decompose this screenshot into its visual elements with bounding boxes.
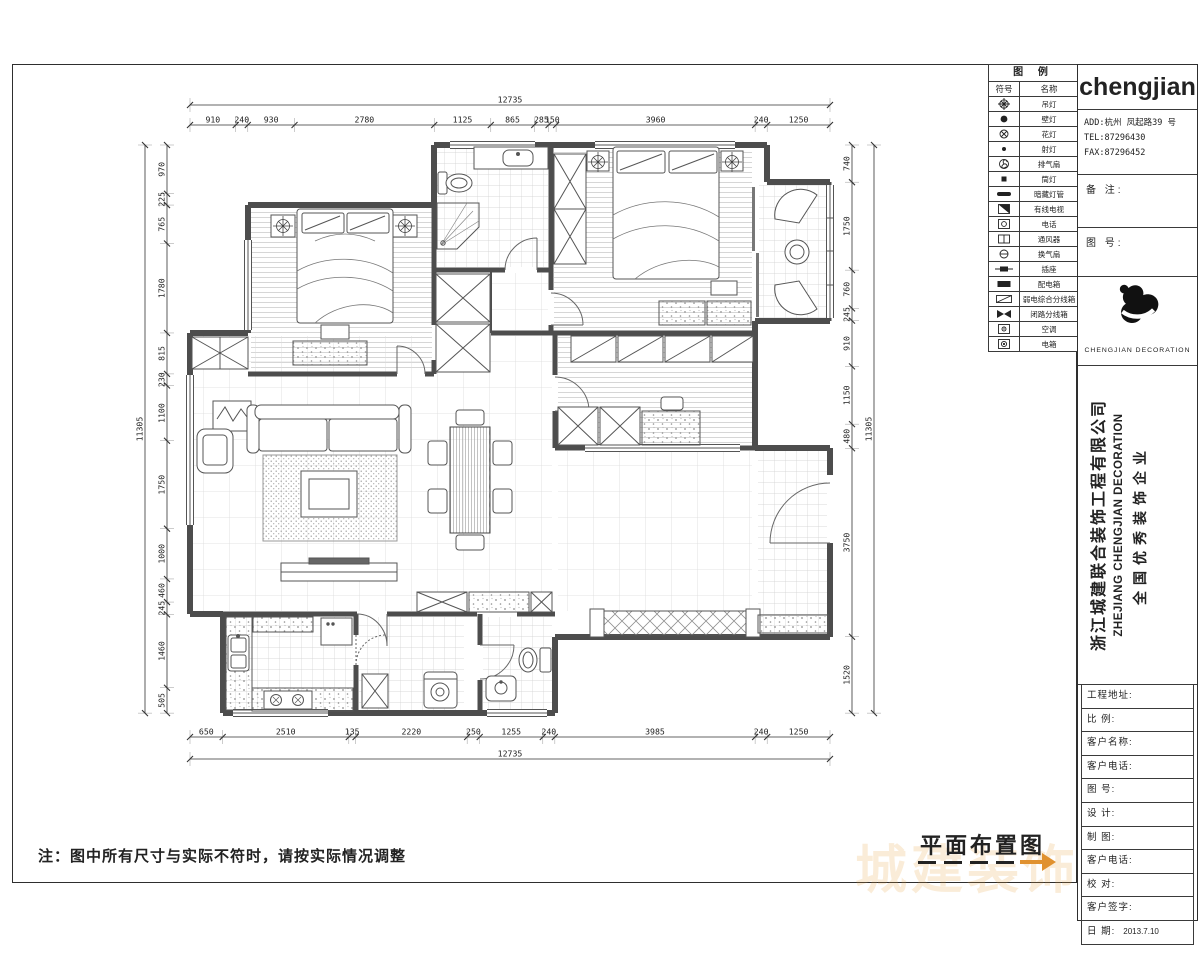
down-lamp-icon (994, 173, 1014, 185)
legend-item-name: 弱电综合分线箱 (1020, 294, 1078, 305)
dimension-value: 3960 (646, 115, 666, 125)
dimension-value: 480 (842, 429, 852, 444)
legend-row: 空调 (989, 322, 1078, 337)
legend-item-name: 射灯 (1020, 144, 1078, 155)
title-field-row: 校 对: (1081, 873, 1194, 898)
legend-symbol (989, 172, 1020, 186)
legend-row: 插座 (989, 262, 1078, 277)
ceiling-lamp-icon (994, 98, 1014, 110)
legend-table: 图 例 符号 名称 吊灯 壁灯 花灯 射灯 排气扇 筒灯 暗藏灯管 有线电视 电… (988, 64, 1079, 352)
company-logo-text: chengjian (1078, 65, 1197, 110)
legend-item-name: 花灯 (1020, 129, 1078, 140)
title-field-row: 客户签字: (1081, 896, 1194, 921)
heater-icon (994, 248, 1014, 260)
legend-body: 吊灯 壁灯 花灯 射灯 排气扇 筒灯 暗藏灯管 有线电视 电话 通风器 换气扇 (989, 97, 1078, 351)
dimension-value: 460 (157, 583, 167, 598)
title-block-fields: 工程地址:比 例:客户名称:客户电话:图 号:设 计:制 图:客户电话:校 对:… (1078, 684, 1197, 945)
dimension-value: 2220 (402, 727, 422, 737)
legend-row: 暗藏灯管 (989, 187, 1078, 202)
logo-caption: CHENGJIAN DECORATION (1078, 347, 1197, 354)
legend-col-symbol: 符号 (989, 82, 1020, 96)
legend-item-name: 闭路分线箱 (1020, 309, 1078, 320)
dimension-value: 240 (541, 727, 556, 737)
dimension-value: 650 (199, 727, 214, 737)
company-contact: ADD:杭州 凤起路39 号 TEL:87296430 FAX:87296452 (1078, 110, 1197, 175)
legend-symbol (989, 277, 1020, 291)
legend-row: 吊灯 (989, 97, 1078, 112)
legend-row: 闭路分线箱 (989, 307, 1078, 322)
company-name-en: ZHEJIANG CHENGJIAN DECORATION (1113, 370, 1125, 680)
floorplan-svg: 9102409302780112586528515039602401250127… (125, 75, 895, 795)
company-fax: FAX:87296452 (1084, 146, 1193, 161)
dimension-value: 865 (505, 115, 520, 125)
cove-light-icon (994, 188, 1014, 200)
dimension-value: 135 (345, 727, 360, 737)
title-field-row: 比 例: (1081, 708, 1194, 733)
title-field-row: 图 号: (1081, 778, 1194, 803)
logo-bird-icon (1103, 277, 1173, 341)
cctv-box-icon (994, 308, 1014, 320)
dimension-value: 240 (754, 115, 769, 125)
dimension-value: 1100 (157, 403, 167, 423)
sheet-note: 注：图中所有尺寸与实际不符时，请按实际情况调整 (38, 845, 406, 866)
title-field-row: 制 图: (1081, 826, 1194, 851)
dimension-value: 250 (466, 727, 481, 737)
dimension-value: 970 (157, 162, 167, 177)
dimension-value: 1000 (157, 544, 167, 564)
legend-row: 弱电综合分线箱 (989, 292, 1078, 307)
spot-lamp-icon (994, 143, 1014, 155)
dimension-value: 240 (754, 727, 769, 737)
legend-symbol (989, 202, 1020, 216)
dimension-value: 3985 (645, 727, 665, 737)
dimension-value: 3750 (842, 533, 852, 553)
legend-symbol (989, 262, 1020, 276)
legend-row: 射灯 (989, 142, 1078, 157)
socket-icon (994, 263, 1014, 275)
dimension-value: 815 (157, 346, 167, 361)
legend-row: 电箱 (989, 337, 1078, 351)
dimension-value: 760 (842, 282, 852, 297)
legend-symbol (989, 142, 1020, 156)
legend-item-name: 插座 (1020, 264, 1078, 275)
company-logo-mark: CHENGJIAN DECORATION (1078, 277, 1197, 366)
legend-symbol (989, 97, 1020, 111)
dimension-value: 245 (157, 601, 167, 616)
legend-row: 电话 (989, 217, 1078, 232)
cable-tv-icon (994, 203, 1014, 215)
legend-item-name: 吊灯 (1020, 99, 1078, 110)
company-name-cn: 浙江城建联合装饰工程有限公司 (1085, 370, 1109, 680)
date-value: 2013.7.10 (1123, 927, 1159, 936)
legend-symbol (989, 217, 1020, 231)
legend-item-name: 空调 (1020, 324, 1078, 335)
dimension-value: 1125 (453, 115, 473, 125)
dimension-value: 740 (842, 156, 852, 171)
dimension-value: 2510 (276, 727, 296, 737)
legend-item-name: 电话 (1020, 219, 1078, 230)
title-block: chengjian ADD:杭州 凤起路39 号 TEL:87296430 FA… (1077, 64, 1198, 921)
remark-label: 备 注: (1078, 175, 1197, 228)
legend-item-name: 筒灯 (1020, 174, 1078, 185)
legend-symbol (989, 307, 1020, 321)
phone-icon (994, 218, 1014, 230)
title-field-row: 客户名称: (1081, 731, 1194, 756)
legend-row: 筒灯 (989, 172, 1078, 187)
legend-row: 配电箱 (989, 277, 1078, 292)
title-field-row: 客户电话: (1081, 849, 1194, 874)
legend-item-name: 电箱 (1020, 339, 1078, 350)
legend-item-name: 换气扇 (1020, 249, 1078, 260)
legend-item-name: 配电箱 (1020, 279, 1078, 290)
balcony-slider (752, 187, 759, 317)
exhaust-fan-icon (994, 158, 1014, 170)
dimension-value: 240 (234, 115, 249, 125)
legend-symbol (989, 187, 1020, 201)
dimension-value: 11305 (135, 417, 145, 442)
company-names: 浙江城建联合装饰工程有限公司 ZHEJIANG CHENGJIAN DECORA… (1078, 366, 1197, 685)
dimension-value: 1255 (501, 727, 521, 737)
legend-symbol (989, 157, 1020, 171)
company-address: ADD:杭州 凤起路39 号 (1084, 116, 1193, 131)
legend-row: 花灯 (989, 127, 1078, 142)
dimension-value: 930 (264, 115, 279, 125)
title-date-row: 日 期:2013.7.10 (1081, 920, 1194, 945)
title-field-row: 工程地址: (1081, 684, 1194, 709)
dimension-value: 1750 (157, 475, 167, 495)
vent-icon (994, 233, 1014, 245)
weak-box-icon (994, 293, 1014, 305)
dimension-value: 1780 (157, 278, 167, 298)
legend-symbol (989, 127, 1020, 141)
dimension-value: 765 (157, 217, 167, 232)
legend-columns: 符号 名称 (989, 82, 1078, 97)
legend-symbol (989, 322, 1020, 336)
dimension-value: 230 (157, 372, 167, 387)
dimension-value: 1750 (842, 216, 852, 236)
wall-lamp-icon (994, 113, 1014, 125)
legend-item-name: 有线电视 (1020, 204, 1078, 215)
dimension-value: 910 (842, 336, 852, 351)
dimension-value: 12735 (498, 749, 523, 759)
dimension-value: 910 (205, 115, 220, 125)
dimension-value: 2780 (355, 115, 375, 125)
title-arrow-tail (1020, 860, 1044, 864)
dimension-value: 12735 (498, 95, 523, 105)
dimension-value: 1460 (157, 641, 167, 661)
legend-row: 通风器 (989, 232, 1078, 247)
legend-symbol (989, 292, 1020, 306)
title-field-row: 客户电话: (1081, 755, 1194, 780)
dist-box-icon (994, 278, 1014, 290)
title-field-row: 设 计: (1081, 802, 1194, 827)
legend-row: 有线电视 (989, 202, 1078, 217)
legend-item-name: 暗藏灯管 (1020, 189, 1078, 200)
meter-box-icon (994, 338, 1014, 350)
dimension-value: 1250 (789, 727, 809, 737)
company-tel: TEL:87296430 (1084, 131, 1193, 146)
dimension-value: 1520 (842, 665, 852, 685)
legend-item-name: 通风器 (1020, 234, 1078, 245)
legend-symbol (989, 247, 1020, 261)
legend-row: 排气扇 (989, 157, 1078, 172)
legend-symbol (989, 232, 1020, 246)
company-slogan: 全国优秀装饰企业 (1130, 370, 1150, 680)
dimension-value: 225 (157, 192, 167, 207)
drawing-no-label: 图 号: (1078, 228, 1197, 277)
legend-symbol (989, 112, 1020, 126)
dimension-value: 1150 (842, 385, 852, 405)
legend-item-name: 排气扇 (1020, 159, 1078, 170)
legend-row: 壁灯 (989, 112, 1078, 127)
legend-symbol (989, 337, 1020, 351)
flower-lamp-icon (994, 128, 1014, 140)
dimension-value: 505 (157, 693, 167, 708)
legend-row: 换气扇 (989, 247, 1078, 262)
drawing-sheet: { "sheet": { "note": "注：图中所有尺寸与实际不符时，请按实… (0, 0, 1200, 960)
dimension-value: 11305 (864, 417, 874, 442)
drawing-title: 平面布置图 (920, 828, 1045, 860)
dimension-value: 150 (545, 115, 560, 125)
legend-item-name: 壁灯 (1020, 114, 1078, 125)
title-arrow-icon (1042, 853, 1056, 871)
dimension-value: 1250 (789, 115, 809, 125)
ac-icon (994, 323, 1014, 335)
legend-col-name: 名称 (1020, 82, 1078, 96)
dimension-value: 245 (842, 307, 852, 322)
legend-title: 图 例 (989, 65, 1078, 82)
